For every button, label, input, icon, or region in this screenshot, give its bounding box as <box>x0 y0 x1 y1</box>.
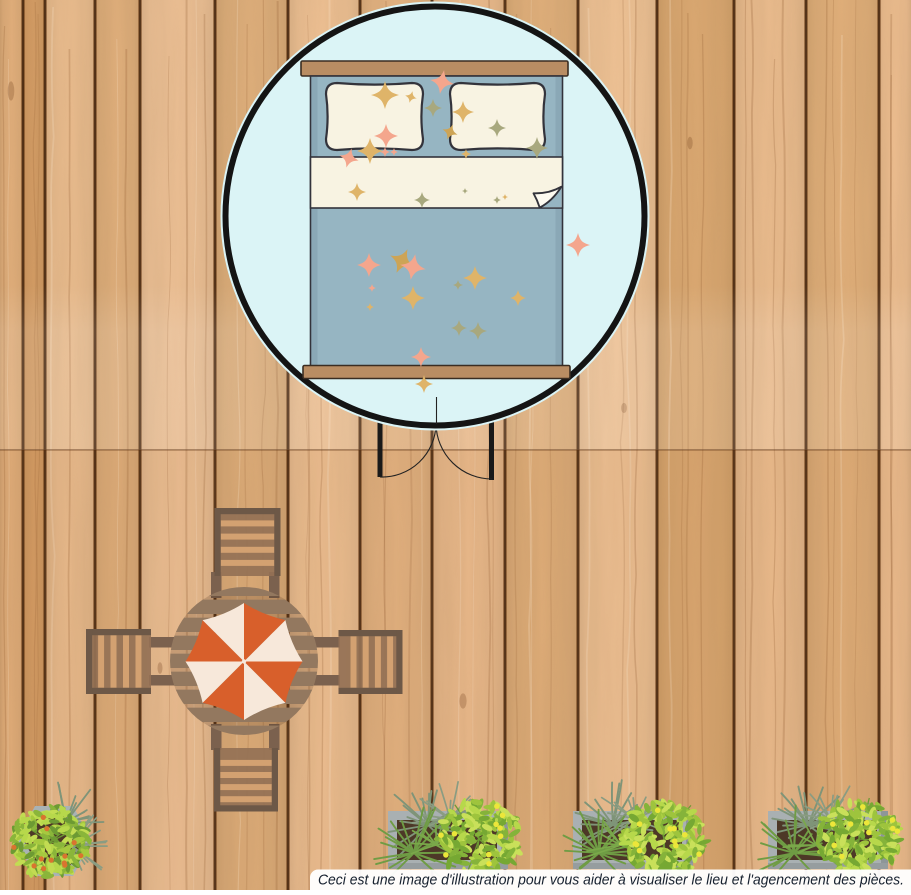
svg-text:Ceci est une image d'illustrat: Ceci est une image d'illustration pour v… <box>318 872 904 889</box>
